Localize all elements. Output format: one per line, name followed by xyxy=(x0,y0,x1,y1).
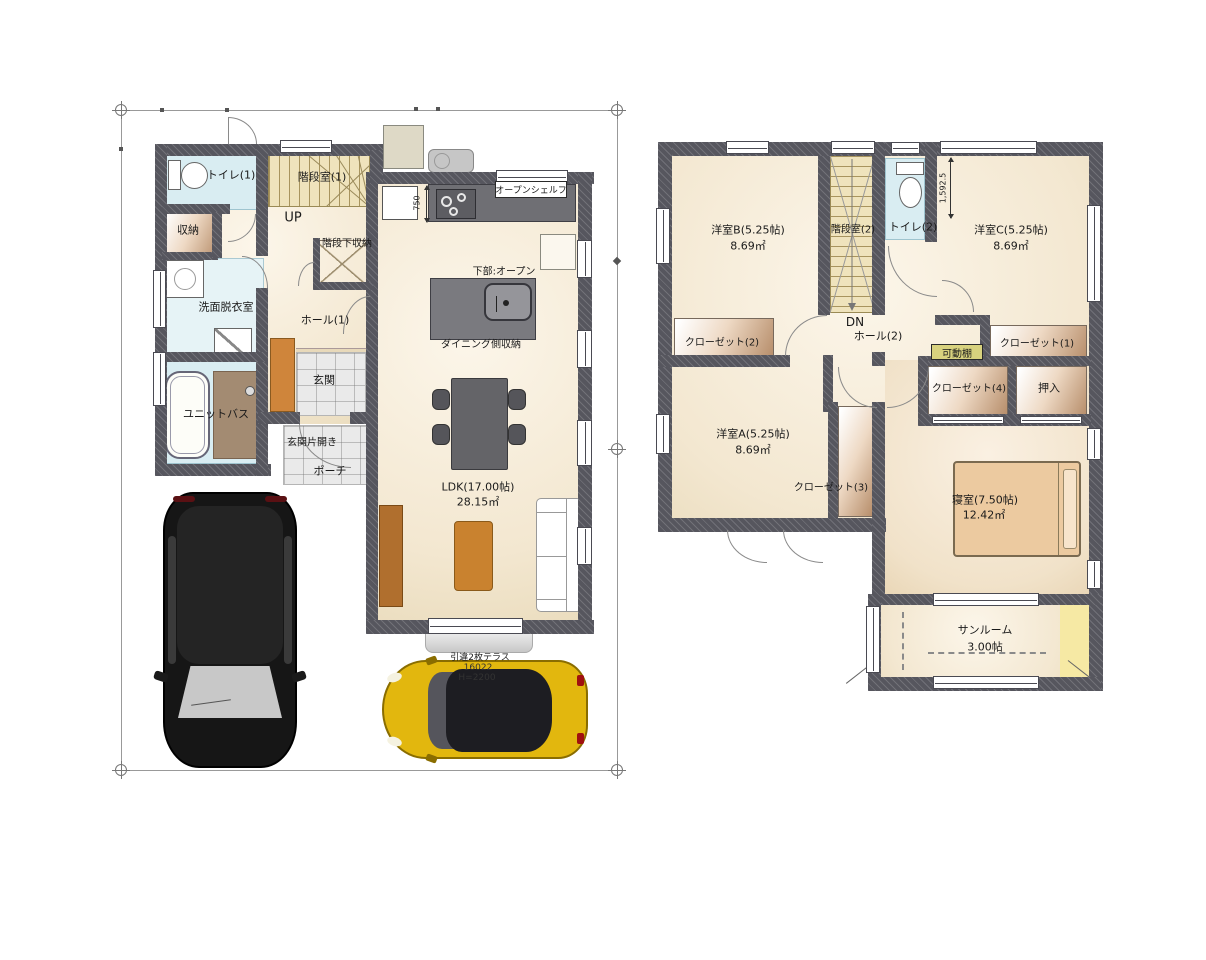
dining-chair xyxy=(508,424,526,445)
entrance-step-strip xyxy=(296,348,366,352)
dining-chair xyxy=(508,389,526,410)
toilet-bowl xyxy=(181,162,208,189)
wall xyxy=(828,402,838,519)
door-swing xyxy=(228,117,257,144)
room-label-master: 寝室(7.50帖) xyxy=(952,495,1018,508)
wall xyxy=(818,156,830,315)
wall xyxy=(313,282,373,290)
car-taillight xyxy=(577,733,584,744)
room-label-bedroomA: 洋室A(5.25帖) xyxy=(716,429,790,442)
black-car xyxy=(163,492,297,768)
label-entrance-door: 玄関片開き xyxy=(287,437,337,449)
floor-plan-canvas: 750 トイレ(1) 階段室(1) UP 収納 階段下収納 洗面脱衣室 ホール(… xyxy=(0,0,1206,960)
toilet-tank xyxy=(168,160,181,190)
window xyxy=(153,352,166,406)
wall xyxy=(872,402,885,596)
boundary-dot xyxy=(160,108,164,112)
boundary-dot xyxy=(414,107,418,111)
coffee-table xyxy=(454,521,493,591)
room-label-unitbath: ユニットバス xyxy=(183,409,249,422)
wall xyxy=(158,352,268,362)
window xyxy=(577,420,592,466)
floor2-closet3-floor xyxy=(838,406,873,517)
car-headlight xyxy=(386,735,403,748)
boundary-line-bottom xyxy=(121,770,617,771)
car-headlight xyxy=(386,671,403,684)
window xyxy=(866,606,880,673)
label-under-open: 下部:オープン xyxy=(473,266,536,278)
room-label-stair2: 階段室(2) xyxy=(831,224,875,236)
room-label-sunroom: サンルーム xyxy=(958,625,1013,638)
room-label-porch: ポーチ xyxy=(314,466,347,479)
label-dn: DN xyxy=(846,316,864,330)
label-terrace-door: 引違2枚テラス xyxy=(450,653,510,663)
window xyxy=(726,141,769,154)
wall xyxy=(658,355,790,367)
sink-faucet-lever xyxy=(496,296,497,312)
window xyxy=(1087,205,1101,302)
dining-chair xyxy=(432,389,450,410)
car-taillight xyxy=(265,496,287,502)
room-label-sunroom-area: 3.00帖 xyxy=(967,642,1003,655)
window xyxy=(577,240,592,278)
wall xyxy=(872,352,885,366)
room-label-bedroomB-area: 8.69㎡ xyxy=(730,241,766,254)
room-label-stair1: 階段室(1) xyxy=(298,172,347,185)
window xyxy=(656,208,670,264)
washing-machine-drum xyxy=(174,268,196,290)
wall xyxy=(523,620,594,634)
room-label-ldk-area: 28.15㎡ xyxy=(457,497,500,510)
car-windshield xyxy=(178,666,282,718)
boundary-marker-icon xyxy=(112,101,130,119)
sofa-cushion-line xyxy=(537,599,566,600)
window xyxy=(933,593,1039,606)
boundary-marker-icon xyxy=(608,101,626,119)
label-closet4: クローゼット(4) xyxy=(932,383,1006,395)
sofa-cushion-line xyxy=(537,512,566,513)
label-terrace-size: 16022 xyxy=(464,663,493,673)
sunroom-dashed-line xyxy=(902,612,904,670)
car-side-window xyxy=(168,536,176,664)
boundary-dot xyxy=(436,107,440,111)
sofa xyxy=(536,498,582,612)
wall xyxy=(370,150,383,184)
closet-sliding-door xyxy=(1020,416,1082,424)
sofa-cushion-line xyxy=(537,556,566,557)
wall xyxy=(1008,366,1016,416)
car-taillight xyxy=(577,675,584,686)
car-mirror xyxy=(153,670,169,683)
label-up: UP xyxy=(284,212,301,227)
boundary-marker-icon xyxy=(608,761,626,779)
tv-board xyxy=(379,505,403,607)
room-label-toilet2: トイレ(2) xyxy=(889,222,938,235)
boundary-tick xyxy=(613,257,621,265)
window xyxy=(577,527,592,565)
dimension-text: 750 xyxy=(413,195,422,210)
toilet2-bowl xyxy=(899,177,922,208)
sink-faucet xyxy=(503,300,509,306)
label-closet3: クローゼット(3) xyxy=(794,482,868,494)
car-mirror xyxy=(425,753,438,763)
window xyxy=(280,140,332,153)
wall xyxy=(155,464,271,476)
room-label-bedroomC-area: 8.69㎡ xyxy=(993,241,1029,254)
car-mirror xyxy=(291,670,307,683)
dining-chair xyxy=(432,424,450,445)
label-movable-shelf: 可動棚 xyxy=(931,344,983,360)
car-side-window xyxy=(284,536,292,664)
stove-burner xyxy=(449,207,458,216)
wall xyxy=(658,142,672,532)
room-label-washroom: 洗面脱衣室 xyxy=(199,302,254,315)
stove-burner xyxy=(457,193,466,202)
dimension-text: 1,592.5 xyxy=(939,173,948,204)
bed-fold-line xyxy=(1058,463,1059,555)
stove-burner xyxy=(441,196,452,207)
car-taillight xyxy=(173,496,195,502)
car-roof xyxy=(177,506,283,664)
terrace-step xyxy=(425,632,533,653)
boundary-dot xyxy=(225,108,229,112)
room-label-toilet1: トイレ(1) xyxy=(207,170,256,183)
window xyxy=(153,270,166,328)
room-label-bedroomC: 洋室C(5.25帖) xyxy=(974,225,1048,238)
label-closet2: クローゼット(2) xyxy=(685,337,759,349)
label-terrace-height: H=2200 xyxy=(458,673,495,683)
wall xyxy=(366,620,430,634)
door-leaf xyxy=(228,117,229,144)
room-label-hall2: ホール(2) xyxy=(854,331,903,344)
dimension-line xyxy=(950,158,951,218)
window xyxy=(891,142,920,154)
window xyxy=(1087,428,1101,460)
window xyxy=(831,141,875,154)
window xyxy=(933,676,1039,689)
terrace-sliding-door xyxy=(428,618,523,634)
room-label-master-area: 12.42㎡ xyxy=(963,510,1006,523)
dimension-line xyxy=(426,186,427,222)
window xyxy=(1087,560,1101,589)
water-heater-tank xyxy=(383,125,424,169)
boundary-dot xyxy=(119,147,123,151)
kitchen-equipment-square xyxy=(540,234,576,270)
room-label-storage: 収納 xyxy=(177,225,199,238)
wall xyxy=(155,144,383,156)
toilet2-tank xyxy=(896,162,924,175)
room-label-bedroomB: 洋室B(5.25帖) xyxy=(711,225,785,238)
casement-window-swing xyxy=(783,530,823,563)
car-mirror xyxy=(425,655,438,665)
wall xyxy=(256,288,268,476)
wall xyxy=(366,184,378,632)
boundary-marker-icon xyxy=(608,440,626,458)
heat-pump-fan xyxy=(434,153,450,169)
label-oshiire: 押入 xyxy=(1038,383,1060,396)
sofa-back-line xyxy=(566,499,567,611)
wall xyxy=(162,252,218,260)
casement-window-swing xyxy=(727,530,767,563)
room-label-entrance: 玄関 xyxy=(313,375,335,388)
closet-sliding-door xyxy=(932,416,1004,424)
wall xyxy=(258,412,300,424)
dining-table xyxy=(451,378,508,470)
label-open-shelf: オープンシェルフ xyxy=(495,181,567,198)
room-label-understair: 階段下収納 xyxy=(322,238,372,250)
room-label-ldk: LDK(17.00帖) xyxy=(442,482,515,495)
boundary-marker-icon xyxy=(112,761,130,779)
wall xyxy=(212,212,222,258)
bed-pillow xyxy=(1063,469,1077,549)
boundary-line-left xyxy=(121,110,122,771)
wall xyxy=(256,144,268,256)
wall xyxy=(658,518,886,532)
window xyxy=(940,141,1037,154)
shoe-cabinet xyxy=(270,338,295,412)
window xyxy=(656,414,670,454)
room-label-hall1: ホール(1) xyxy=(301,315,350,328)
room-label-bedroomA-area: 8.69㎡ xyxy=(735,445,771,458)
shower-drain xyxy=(245,386,255,396)
window xyxy=(577,330,592,368)
label-closet1: クローゼット(1) xyxy=(1000,338,1074,350)
label-dining-storage: ダイニング側収納 xyxy=(441,339,521,351)
boundary-line-top xyxy=(121,110,617,111)
